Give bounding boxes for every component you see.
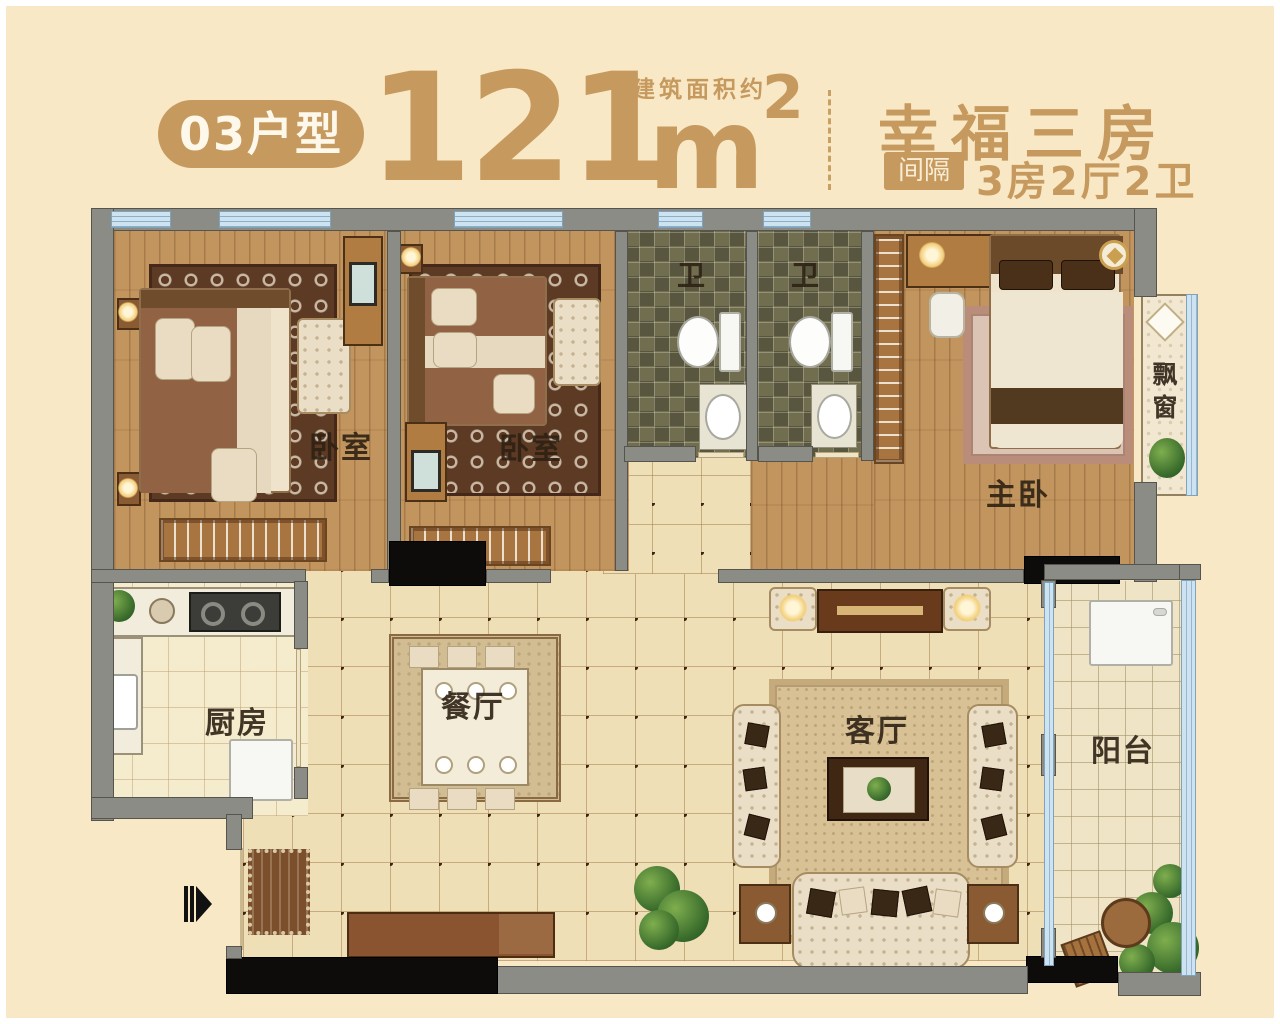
living-sofa-right — [967, 704, 1018, 868]
window-bathroom2 — [763, 211, 811, 228]
dining-chair-bottom3 — [485, 788, 515, 810]
wall-bathroom2-master — [861, 231, 874, 461]
balcony-sliding-door — [1044, 582, 1054, 966]
area-exponent: 2 — [762, 68, 804, 128]
unit-type-badge: 03户型 — [158, 100, 364, 168]
balcony-table — [1101, 898, 1151, 948]
wall-right-upper — [1134, 208, 1157, 297]
area-number: 121 — [368, 54, 669, 204]
dining-plate4 — [435, 756, 453, 774]
master-dresser-lamp — [919, 242, 945, 268]
living-room-label: 客厅 — [807, 714, 947, 750]
end-table-left-plate — [755, 902, 777, 924]
master-closet — [874, 234, 904, 464]
balcony-label: 阳台 — [1053, 734, 1193, 770]
master-pillow1 — [999, 260, 1053, 290]
balcony-glass-right — [1181, 580, 1196, 976]
dining-plate6 — [499, 756, 517, 774]
entry-sideboard-right — [499, 914, 553, 954]
layout-text: 3房2厅2卫 — [976, 149, 1198, 207]
living-console-lamp-left — [779, 594, 807, 622]
bedroom1-lamp-bottom — [118, 478, 138, 498]
balcony-washer — [1089, 600, 1173, 666]
wall-kitchen-right-top — [294, 581, 308, 649]
dining-chair-bottom1 — [409, 788, 439, 810]
bedroom2-bench — [553, 298, 601, 386]
dining-table — [421, 668, 529, 786]
bay-window-glass — [1186, 294, 1198, 496]
window-bedroom2 — [454, 211, 563, 228]
master-pouf — [929, 292, 965, 338]
bedroom2-label: 卧室 — [466, 432, 596, 468]
dining-chair-top3 — [485, 646, 515, 668]
living-sofa-bottom — [792, 872, 970, 969]
master-bed — [989, 234, 1121, 449]
arrow-head — [196, 886, 212, 922]
bedroom1-bed — [139, 288, 291, 493]
living-sofa-left — [732, 704, 781, 868]
bedroom2-pillow3 — [493, 374, 535, 414]
entry-edge-line — [240, 848, 243, 950]
wall-bedroom1-bottom — [91, 569, 306, 583]
sofa-right-pillow3 — [981, 814, 1008, 841]
wall-bedroom2-bottom — [486, 569, 551, 583]
bedroom2-bed — [407, 276, 547, 426]
wall-black-bottom-left — [226, 957, 498, 994]
bedroom1-bed-headboard — [141, 290, 289, 308]
kitchen-stove — [189, 592, 281, 632]
bedroom1-lamp-top — [118, 302, 138, 322]
kitchen-fridge — [229, 739, 293, 801]
master-bed-foot — [991, 424, 1123, 448]
bedroom2-lamp — [401, 247, 421, 267]
bedroom1-pillow1 — [155, 318, 195, 380]
entry-sideboard — [347, 912, 555, 958]
window-bedroom1-b — [219, 211, 331, 228]
bathroom1-sink-basin — [705, 394, 741, 440]
living-console-lamp-right — [953, 594, 981, 622]
wall-bedroom1-bottom-stub — [371, 569, 389, 583]
master-dresser — [906, 234, 994, 288]
dining-chair-top2 — [447, 646, 477, 668]
dining-room-label: 餐厅 — [403, 690, 543, 726]
kitchen-label: 厨房 — [191, 706, 283, 742]
wall-bedroom-divider — [387, 231, 401, 571]
sofa-left-pillow3 — [744, 814, 771, 841]
sofa-left-pillow1 — [744, 722, 769, 747]
kitchen-pot — [149, 598, 175, 624]
bay-window-label: 飘窗 — [1143, 346, 1183, 442]
end-table-right-plate — [983, 902, 1005, 924]
bathroom1-label: 卫 — [661, 258, 723, 294]
window-bathroom1 — [658, 211, 703, 228]
sofa-left-pillow2 — [743, 767, 768, 792]
bathroom2-toilet-bowl — [789, 316, 831, 368]
area-unit: m — [648, 94, 765, 206]
sofa-right-pillow2 — [980, 767, 1005, 792]
wall-bathroom-divider — [746, 231, 758, 461]
dining-chair-top1 — [409, 646, 439, 668]
wall-black-bedroom2 — [389, 541, 486, 586]
wall-tv — [718, 569, 1024, 583]
wall-balcony-corner-top — [1179, 564, 1201, 580]
wall-entry-stub-bottom — [226, 946, 242, 959]
coffee-table-plant — [867, 777, 891, 801]
area-note: 建筑面积约 — [632, 70, 767, 104]
sofa-bottom-pillow1 — [806, 888, 836, 918]
living-end-table-left — [739, 884, 791, 944]
wall-black-living-bottom — [1026, 956, 1118, 983]
sofa-right-pillow1 — [981, 722, 1006, 747]
layout-badge: 间隔 — [884, 152, 964, 190]
bedroom1-pillow3 — [211, 448, 257, 502]
window-bedroom1-a — [111, 211, 171, 228]
master-bed-duvet — [991, 292, 1123, 388]
dining-plate5 — [467, 756, 485, 774]
bathroom1-toilet-bowl — [677, 316, 719, 368]
bedroom1-tv — [349, 262, 377, 306]
bay-window-plant — [1149, 438, 1185, 478]
bedroom1-label: 卧室 — [276, 431, 406, 467]
wall-bathroom1-bottom — [624, 446, 696, 462]
header-divider — [828, 90, 831, 190]
wall-bedroom2-corridor — [615, 231, 628, 571]
living-end-table-right — [967, 884, 1019, 944]
sofa-bottom-pillow4 — [902, 886, 933, 917]
compass-diamond — [1107, 248, 1124, 265]
living-coffee-table — [827, 757, 929, 821]
living-tv-cabinet — [817, 589, 943, 633]
master-bedroom-label: 主卧 — [949, 478, 1087, 514]
sofa-bottom-pillow5 — [932, 888, 961, 917]
bathroom2-label: 卫 — [775, 258, 837, 294]
sofa-bottom-pillow2 — [838, 886, 867, 915]
wall-bathroom2-bottom — [758, 446, 813, 462]
bedroom2-pillow2 — [433, 332, 477, 368]
bathroom1-toilet-tank — [719, 312, 741, 372]
bathroom2-toilet-tank — [831, 312, 853, 372]
bedroom2-tv — [411, 450, 441, 492]
wall-left — [91, 208, 114, 821]
bathroom2-door-leaf — [815, 452, 859, 458]
arrow-bar2 — [190, 886, 194, 922]
wall-balcony-top — [1044, 564, 1201, 580]
wall-kitchen-right-bottom — [294, 767, 308, 799]
wall-entry-stub-top — [226, 814, 242, 850]
sofa-bottom-pillow3 — [871, 889, 900, 918]
floor-plan: 卧室 卧室 卫 卫 — [91, 206, 1213, 1008]
bedroom2-bed-headboard — [409, 278, 425, 424]
entrance-arrow-icon — [184, 886, 214, 922]
dining-chair-bottom2 — [447, 788, 477, 810]
bedroom1-pillow2 — [191, 326, 231, 382]
stove-burner-right — [241, 602, 265, 626]
page-background: 03户型 121 m 2 建筑面积约 幸福三房 间隔 3房2厅2卫 — [0, 0, 1280, 1024]
wall-bottom-gray — [496, 966, 1028, 994]
entry-door-mat — [248, 849, 310, 935]
bedroom2-pillow1 — [431, 288, 477, 326]
stove-burner-left — [201, 602, 225, 626]
bathroom2-sink-basin — [817, 394, 852, 439]
bathroom1-door-leaf — [698, 452, 744, 458]
bedroom1-wardrobe — [159, 518, 327, 562]
master-compass-decor — [1099, 240, 1129, 270]
master-bed-blanket — [991, 388, 1123, 424]
living-tv — [837, 606, 923, 615]
kitchen-door-leaf — [296, 649, 301, 767]
arrow-bar1 — [184, 886, 188, 922]
living-plant3 — [639, 910, 679, 950]
washer-knob — [1153, 608, 1167, 616]
